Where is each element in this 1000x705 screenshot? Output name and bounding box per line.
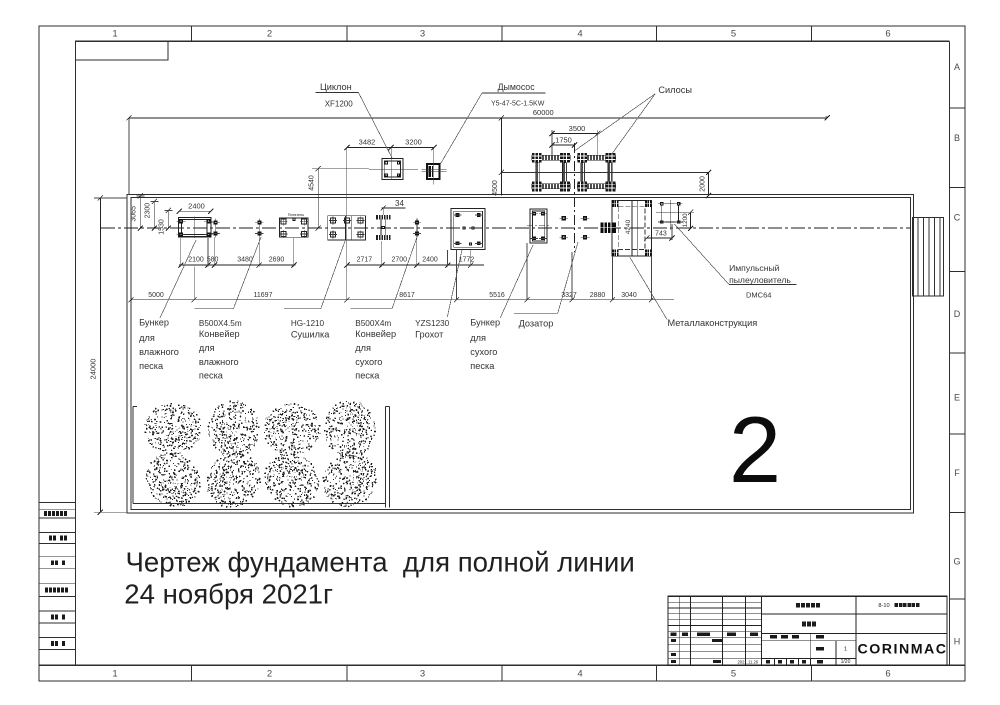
svg-text:Чертеж фундамента для полной: Чертеж фундамента для полной линии xyxy=(126,546,635,577)
svg-text:Сушилка: Сушилка xyxy=(291,329,330,339)
svg-text:2700: 2700 xyxy=(392,256,408,263)
svg-text:2300: 2300 xyxy=(145,203,152,219)
svg-text:4240: 4240 xyxy=(625,219,632,234)
svg-text:C: C xyxy=(954,213,961,223)
svg-text:2400: 2400 xyxy=(422,256,438,263)
svg-text:XF1200: XF1200 xyxy=(325,99,354,108)
svg-text:DMC64: DMC64 xyxy=(746,290,771,299)
svg-text:4: 4 xyxy=(577,29,582,40)
svg-text:2: 2 xyxy=(267,669,272,680)
svg-text:для: для xyxy=(355,343,371,353)
svg-text:5516: 5516 xyxy=(489,292,505,299)
svg-text:60000: 60000 xyxy=(533,108,554,117)
svg-text:34: 34 xyxy=(395,199,404,208)
svg-text:D: D xyxy=(954,309,961,319)
svg-text:Силосы: Силосы xyxy=(658,85,692,95)
svg-text:Конвейер: Конвейер xyxy=(355,329,396,339)
svg-text:2: 2 xyxy=(729,397,781,502)
svg-text:1: 1 xyxy=(112,669,117,680)
svg-text:влажного: влажного xyxy=(139,347,179,357)
svg-text:Циклон: Циклон xyxy=(320,82,352,92)
svg-text:Дозатор: Дозатор xyxy=(519,318,554,328)
svg-text:1772: 1772 xyxy=(459,256,475,263)
svg-text:6: 6 xyxy=(885,669,890,680)
svg-text:3040: 3040 xyxy=(621,292,637,299)
svg-text:2100: 2100 xyxy=(188,256,204,263)
svg-text:3065: 3065 xyxy=(131,206,138,222)
svg-text:Импульсный: Импульсный xyxy=(729,263,780,273)
svg-text:Питатель: Питатель xyxy=(288,213,304,217)
svg-text:4540: 4540 xyxy=(309,175,316,191)
svg-text:3500: 3500 xyxy=(569,124,586,133)
svg-text:для: для xyxy=(199,343,215,353)
svg-text:4: 4 xyxy=(577,669,582,680)
svg-text:H: H xyxy=(954,636,961,646)
svg-text:580: 580 xyxy=(207,256,219,263)
svg-text:HG-1210: HG-1210 xyxy=(291,319,325,328)
svg-text:песка: песка xyxy=(199,371,224,381)
svg-text:1: 1 xyxy=(844,647,847,653)
svg-text:Y5-47-5C-1.5KW: Y5-47-5C-1.5KW xyxy=(491,100,545,107)
svg-text:2: 2 xyxy=(267,29,272,40)
svg-text:Конвейер: Конвейер xyxy=(199,329,240,339)
svg-text:влажного: влажного xyxy=(199,357,239,367)
svg-text:Бункер: Бункер xyxy=(470,317,500,327)
svg-text:2880: 2880 xyxy=(590,292,606,299)
svg-text:Дымосос: Дымосос xyxy=(498,82,536,92)
svg-text:B500X4m: B500X4m xyxy=(355,319,391,328)
svg-text:F: F xyxy=(954,468,960,478)
svg-text:CORINMAC: CORINMAC xyxy=(857,642,947,658)
svg-text:песка: песка xyxy=(470,361,495,371)
svg-text:3200: 3200 xyxy=(405,138,422,147)
svg-text:E: E xyxy=(954,392,960,402)
svg-text:8617: 8617 xyxy=(399,292,415,299)
svg-text:G: G xyxy=(953,556,960,566)
svg-text:8-10: 8-10 xyxy=(878,603,889,609)
svg-text:сухого: сухого xyxy=(470,347,497,357)
svg-text:B500X4.5m: B500X4.5m xyxy=(199,319,242,328)
svg-text:Грохот: Грохот xyxy=(415,329,444,339)
svg-text:743: 743 xyxy=(655,230,667,237)
svg-text:1: 1 xyxy=(112,29,117,40)
svg-text:B: B xyxy=(954,133,960,143)
svg-text:24000: 24000 xyxy=(89,359,98,380)
svg-text:6: 6 xyxy=(885,29,890,40)
svg-text:4500: 4500 xyxy=(492,180,499,196)
svg-text:1750: 1750 xyxy=(555,135,572,144)
svg-text:11697: 11697 xyxy=(254,292,273,299)
svg-text:2400: 2400 xyxy=(188,201,205,210)
svg-text:5: 5 xyxy=(731,29,736,40)
svg-text:3480: 3480 xyxy=(237,256,253,263)
svg-text:Бункер: Бункер xyxy=(139,317,169,327)
svg-text:YZS1230: YZS1230 xyxy=(415,319,450,328)
svg-text:1/20: 1/20 xyxy=(841,659,851,665)
svg-text:для: для xyxy=(470,333,486,343)
svg-text:1200: 1200 xyxy=(682,213,689,227)
svg-text:песка: песка xyxy=(139,361,164,371)
svg-text:3482: 3482 xyxy=(359,138,376,147)
svg-text:сухого: сухого xyxy=(355,357,382,367)
svg-text:1530: 1530 xyxy=(159,219,166,235)
svg-text:2690: 2690 xyxy=(269,256,285,263)
svg-text:2717: 2717 xyxy=(357,256,373,263)
svg-text:песка: песка xyxy=(355,371,380,381)
svg-text:для: для xyxy=(139,333,155,343)
svg-text:пылеуловитель: пылеуловитель xyxy=(729,275,791,285)
svg-text:3: 3 xyxy=(420,29,425,40)
svg-text:A: A xyxy=(954,62,960,72)
svg-text:5: 5 xyxy=(731,669,736,680)
svg-text:2000: 2000 xyxy=(699,176,706,192)
svg-text:24 ноября 2021г: 24 ноября 2021г xyxy=(124,578,333,609)
svg-text:Металлаконструкция: Металлаконструкция xyxy=(668,318,758,328)
svg-text:3: 3 xyxy=(420,669,425,680)
svg-text:5000: 5000 xyxy=(148,292,164,299)
svg-text:2021.11.26: 2021.11.26 xyxy=(737,659,758,664)
